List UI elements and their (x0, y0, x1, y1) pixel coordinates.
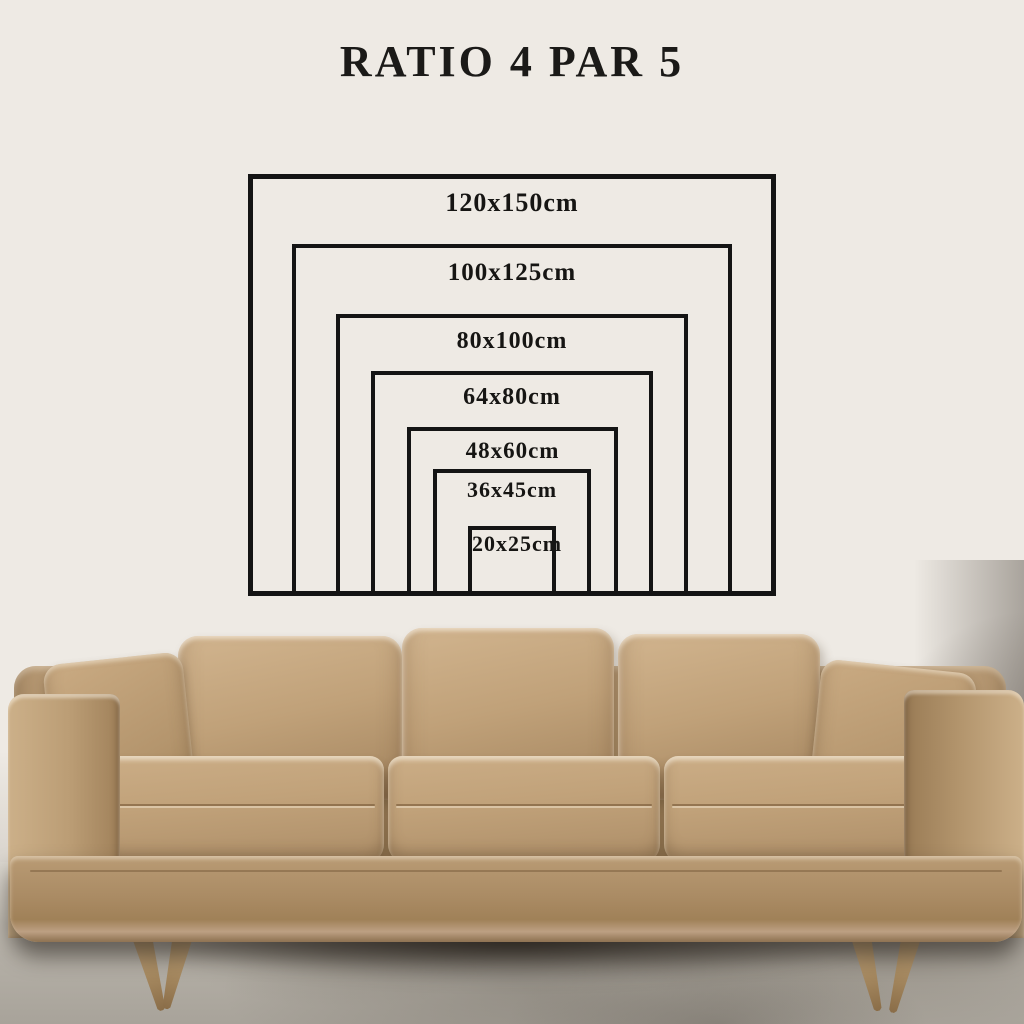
size-label: 64x80cm (375, 384, 649, 410)
sofa-seat-cushion-middle (388, 756, 660, 864)
sofa-base-rail (10, 856, 1022, 942)
size-label: 20x25cm (472, 532, 552, 556)
size-label: 100x125cm (296, 259, 728, 287)
sofa-seat-cushion-left (100, 756, 384, 864)
size-label: 36x45cm (437, 478, 587, 502)
size-rectangle: 20x25cm (468, 526, 556, 596)
ratio-title: RATIO 4 PAR 5 (0, 36, 1024, 87)
scene: RATIO 4 PAR 5 120x150cm100x125cm80x100cm… (0, 0, 1024, 1024)
size-label: 48x60cm (411, 438, 614, 463)
size-label: 80x100cm (340, 328, 684, 354)
sofa-seat-cushion-right (664, 756, 936, 864)
sofa (8, 620, 1016, 1024)
size-label: 120x150cm (253, 189, 771, 218)
